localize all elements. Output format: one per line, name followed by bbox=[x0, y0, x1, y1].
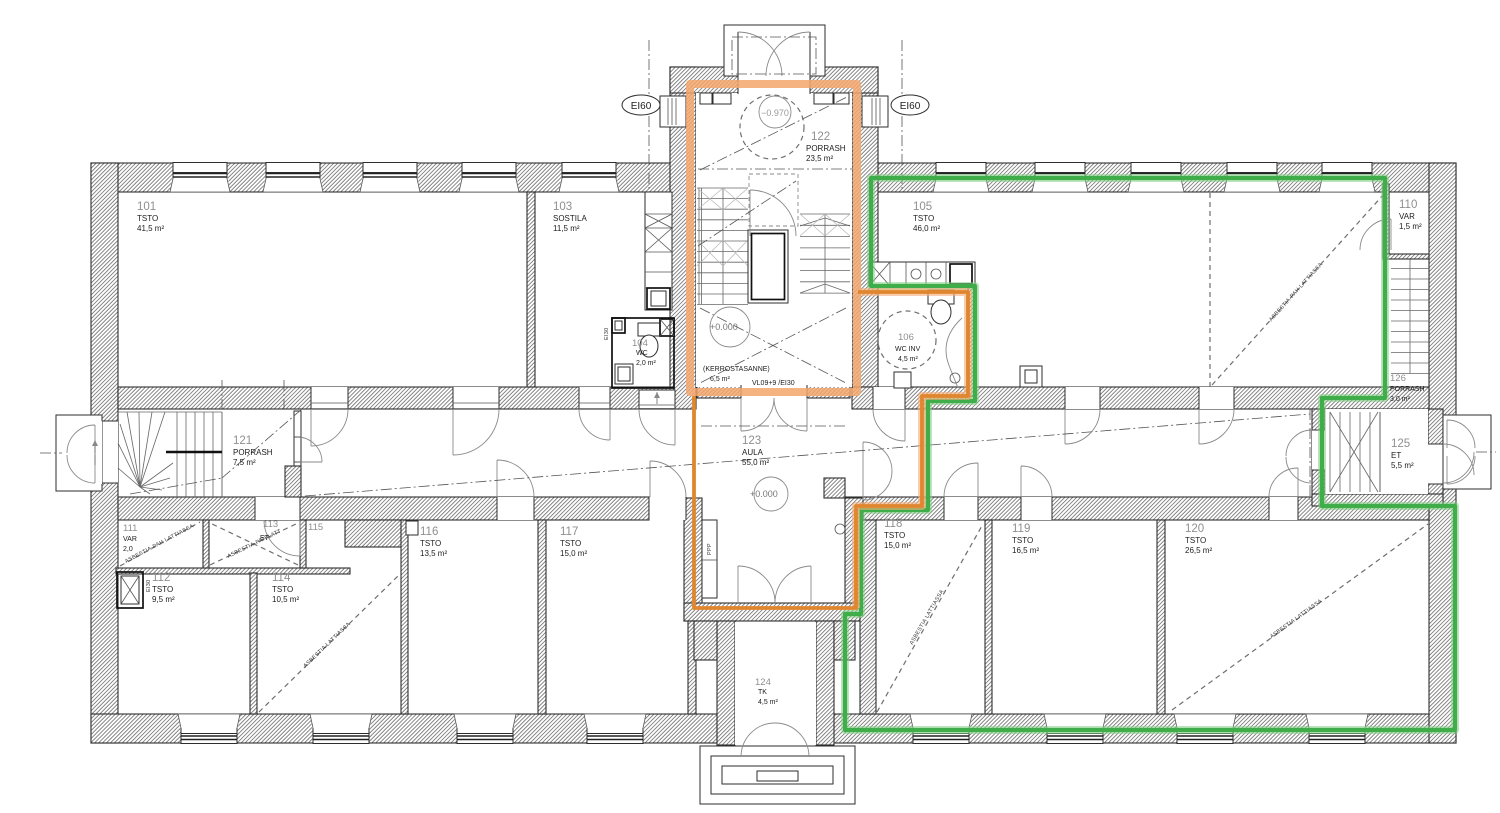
svg-text:110: 110 bbox=[1399, 199, 1417, 211]
svg-text:PPP: PPP bbox=[707, 543, 713, 555]
svg-text:114: 114 bbox=[272, 572, 291, 584]
svg-text:116: 116 bbox=[420, 526, 438, 538]
svg-text:AULA: AULA bbox=[742, 448, 764, 457]
svg-text:ET: ET bbox=[1391, 451, 1401, 460]
svg-text:26,5 m²: 26,5 m² bbox=[1185, 546, 1212, 555]
svg-text:7,5 m²: 7,5 m² bbox=[233, 458, 256, 467]
svg-text:55,0 m²: 55,0 m² bbox=[742, 458, 769, 467]
svg-text:106: 106 bbox=[898, 332, 914, 343]
svg-text:TSTO: TSTO bbox=[420, 539, 441, 548]
svg-text:15,0 m²: 15,0 m² bbox=[560, 549, 587, 558]
svg-text:115: 115 bbox=[308, 522, 323, 533]
svg-text:9,5 m²: 9,5 m² bbox=[152, 595, 175, 604]
svg-text:WC INV: WC INV bbox=[895, 346, 921, 353]
svg-text:SOSTILA: SOSTILA bbox=[553, 214, 587, 223]
svg-text:PORRASH: PORRASH bbox=[233, 448, 273, 457]
svg-text:EI30: EI30 bbox=[146, 579, 152, 592]
svg-text:111: 111 bbox=[123, 523, 137, 534]
svg-text:+0.000: +0.000 bbox=[710, 322, 738, 332]
svg-text:TSTO: TSTO bbox=[1185, 536, 1206, 545]
svg-text:VAR: VAR bbox=[1399, 212, 1415, 221]
svg-text:EI60: EI60 bbox=[900, 101, 921, 112]
svg-text:11,5 m²: 11,5 m² bbox=[553, 224, 580, 233]
svg-text:TSTO: TSTO bbox=[152, 585, 173, 594]
svg-text:EI30: EI30 bbox=[604, 327, 610, 340]
svg-text:TK: TK bbox=[758, 689, 767, 696]
svg-text:41,5 m²: 41,5 m² bbox=[137, 224, 164, 233]
svg-text:2,0: 2,0 bbox=[123, 546, 133, 553]
svg-text:TSTO: TSTO bbox=[884, 531, 905, 540]
svg-text:3,0 m²: 3,0 m² bbox=[1390, 396, 1411, 403]
svg-text:6,5 m²: 6,5 m² bbox=[710, 376, 731, 383]
svg-text:15,0 m²: 15,0 m² bbox=[884, 541, 911, 550]
svg-text:123: 123 bbox=[742, 435, 761, 447]
svg-text:16,5 m²: 16,5 m² bbox=[1012, 546, 1039, 555]
svg-text:103: 103 bbox=[553, 201, 572, 213]
svg-text:113: 113 bbox=[263, 519, 278, 530]
svg-text:13,5 m²: 13,5 m² bbox=[420, 549, 447, 558]
svg-text:104: 104 bbox=[632, 338, 648, 349]
svg-text:125: 125 bbox=[1391, 438, 1410, 450]
svg-text:TSTO: TSTO bbox=[1012, 536, 1033, 545]
svg-text:120: 120 bbox=[1185, 523, 1204, 535]
svg-text:46,0 m²: 46,0 m² bbox=[913, 224, 940, 233]
svg-text:−0.970: −0.970 bbox=[761, 108, 789, 118]
svg-text:PORRASH: PORRASH bbox=[1390, 386, 1425, 393]
svg-text:119: 119 bbox=[1012, 523, 1030, 535]
svg-text:105: 105 bbox=[913, 201, 932, 213]
svg-text:4,5 m²: 4,5 m² bbox=[758, 699, 779, 706]
svg-text:+0.000: +0.000 bbox=[750, 489, 778, 499]
svg-text:VL09+9 /EI30: VL09+9 /EI30 bbox=[752, 380, 795, 387]
svg-text:117: 117 bbox=[560, 526, 578, 538]
svg-text:101: 101 bbox=[137, 201, 156, 213]
svg-text:2,0 m²: 2,0 m² bbox=[636, 360, 657, 367]
svg-text:5,5 m²: 5,5 m² bbox=[1391, 461, 1414, 470]
svg-text:PORRASH: PORRASH bbox=[806, 144, 846, 153]
svg-text:VAR: VAR bbox=[123, 536, 137, 543]
svg-text:WC: WC bbox=[636, 350, 648, 357]
svg-text:112: 112 bbox=[152, 572, 170, 584]
svg-text:1,5 m²: 1,5 m² bbox=[1399, 222, 1422, 231]
svg-text:126: 126 bbox=[1390, 373, 1406, 384]
svg-text:122: 122 bbox=[811, 131, 830, 143]
svg-text:118: 118 bbox=[884, 518, 902, 530]
svg-text:4,5 m²: 4,5 m² bbox=[898, 356, 919, 363]
svg-text:10,5 m²: 10,5 m² bbox=[272, 595, 299, 604]
svg-text:(KERROSTASANNE): (KERROSTASANNE) bbox=[703, 366, 770, 373]
svg-text:124: 124 bbox=[755, 677, 771, 688]
svg-text:121: 121 bbox=[233, 435, 252, 447]
svg-text:TSTO: TSTO bbox=[560, 539, 581, 548]
svg-text:TSTO: TSTO bbox=[913, 214, 934, 223]
svg-text:23,5 m²: 23,5 m² bbox=[806, 154, 833, 163]
svg-text:EI60: EI60 bbox=[631, 101, 652, 112]
svg-text:TSTO: TSTO bbox=[272, 585, 293, 594]
svg-text:TSTO: TSTO bbox=[137, 214, 158, 223]
